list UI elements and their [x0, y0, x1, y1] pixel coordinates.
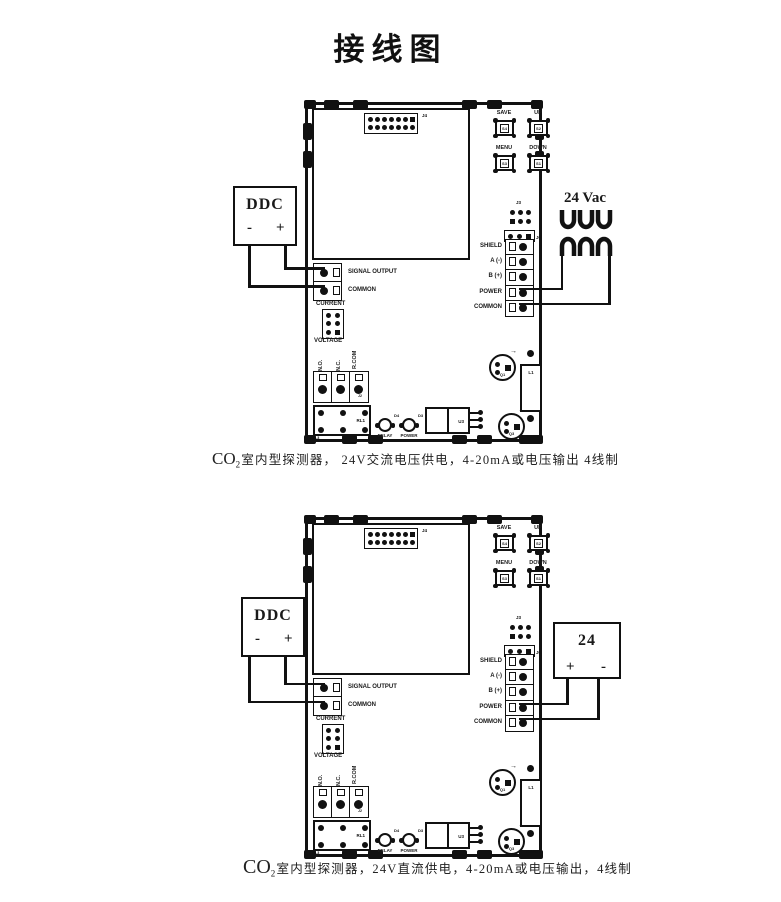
save-button: S4	[495, 535, 514, 551]
menu-button: S3	[495, 155, 514, 171]
l1-inductor: L1	[520, 364, 542, 412]
save-button-label: SAVE	[490, 526, 518, 532]
ddc-title: DDC	[235, 196, 295, 214]
menu-button: S3	[495, 570, 514, 586]
relay-led	[378, 418, 392, 432]
d4-label: D4	[394, 829, 399, 833]
q3-transistor: Q3	[498, 413, 525, 440]
caption-diagram-2: CO2室内型探测器，24V直流供电，4-20mA或电压输出，4线制	[243, 856, 632, 879]
ddc-title: DDC	[243, 607, 303, 625]
ddc-minus-terminal: -	[255, 632, 260, 647]
common-label: COMMON	[438, 719, 502, 725]
terminal-no	[314, 787, 332, 817]
relay-rl1: RL1	[313, 820, 371, 851]
j3-label: J3	[516, 201, 521, 206]
wire-xfmr-left-leg	[561, 252, 564, 290]
a-minus-label: A (-)	[438, 673, 502, 679]
dc-source-label: 24	[555, 632, 619, 650]
up-button: S2	[529, 535, 548, 551]
shield-label: SHIELD	[438, 243, 502, 249]
wire-dc-minus-h	[519, 718, 600, 721]
detector-board-2: J4 SAVE S4 UP S2 MENU S3 DOWN S1 J3	[305, 517, 542, 857]
j3-label: J3	[516, 616, 521, 621]
current-voltage-jumper	[322, 724, 344, 754]
wire-xfmr-power-h	[519, 288, 563, 291]
up-button: S2	[529, 120, 548, 136]
q1-arrow: →	[510, 348, 517, 355]
b-plus-label: B (+)	[438, 273, 502, 279]
ddc-controller-2: DDC - +	[241, 597, 305, 657]
a-minus-label: A (-)	[438, 258, 502, 264]
power-label: POWER	[438, 289, 502, 295]
wiring-diagram-page: 接线图 J4 SAVE S4 UP	[0, 0, 781, 902]
b-plus-label: B (+)	[438, 688, 502, 694]
terminal-b-plus	[506, 270, 533, 285]
common-label: COMMON	[438, 304, 502, 310]
current-voltage-jumper	[322, 309, 344, 339]
dc-power-source: 24 + -	[553, 622, 621, 679]
ddc-controller-1: DDC - +	[233, 186, 297, 246]
dc-minus-terminal: -	[601, 660, 606, 675]
down-button-label: DOWN	[522, 146, 554, 152]
wire-ddc1-minus-h	[248, 285, 325, 288]
save-button-label: SAVE	[490, 111, 518, 117]
menu-button-label: MENU	[488, 146, 520, 152]
wire-ddc2-minus-h	[248, 701, 325, 704]
u3-component: U3	[425, 822, 470, 849]
j2-label: J2	[358, 395, 362, 399]
l1-inductor: L1	[520, 779, 542, 827]
j3-header	[508, 208, 532, 226]
ddc-minus-terminal: -	[247, 221, 252, 236]
no-label: N.O.	[319, 758, 325, 786]
j2-label: J2	[358, 810, 362, 814]
wire-dc-plus-h	[519, 703, 569, 706]
no-label: N.O.	[319, 343, 325, 371]
rcom-label: R.COM	[353, 756, 359, 784]
nc-label: N.C.	[337, 758, 343, 786]
wire-xfmr-common-h	[519, 303, 611, 306]
down-button: S1	[529, 155, 548, 171]
j4-connector	[364, 113, 418, 134]
d4-label: D4	[394, 414, 399, 418]
wire-ddc1-plus-v	[284, 246, 287, 269]
u3-component: U3	[425, 407, 470, 434]
switch-label: SWITCH	[526, 436, 540, 440]
terminal-shield	[506, 240, 533, 255]
ddc-plus-terminal: +	[284, 632, 293, 647]
save-button: S4	[495, 120, 514, 136]
terminal-nc	[332, 372, 350, 402]
sl3-label: SL3	[312, 851, 319, 855]
comm-terminal-block	[505, 239, 534, 317]
page-title: 接线图	[0, 24, 781, 69]
current-label: CURRENT	[316, 301, 345, 307]
wire-xfmr-right-leg	[608, 252, 611, 305]
shield-label: SHIELD	[438, 658, 502, 664]
power-label: POWER	[438, 704, 502, 710]
wire-ddc2-plus-h	[284, 683, 325, 686]
comm-terminal-block	[505, 654, 534, 732]
j4-connector	[364, 528, 418, 549]
up-button-label: UP	[524, 526, 552, 532]
terminal-b-plus	[506, 685, 533, 700]
ddc-plus-terminal: +	[276, 221, 285, 236]
terminal-a-minus	[506, 255, 533, 270]
d3-label: D3	[418, 829, 423, 833]
up-button-label: UP	[524, 111, 552, 117]
detector-board-1: J4 SAVE S4 UP S2 MENU S3 DOWN S1 J3	[305, 102, 542, 442]
j3-header	[508, 623, 532, 641]
wire-dc-plus-v	[566, 679, 569, 705]
power-led	[402, 418, 416, 432]
terminal-no	[314, 372, 332, 402]
q1-transistor: Q1	[489, 354, 516, 381]
terminal-nc	[332, 787, 350, 817]
j6-label: J6	[536, 236, 541, 241]
rcom-label: R.COM	[353, 341, 359, 369]
pcb-outline: J4 SAVE S4 UP S2 MENU S3 DOWN S1 J3	[305, 517, 542, 857]
wire-ddc1-minus-v	[248, 246, 251, 287]
output-common-label: COMMON	[348, 287, 376, 293]
q3-transistor: Q3	[498, 828, 525, 855]
terminal-a-minus	[506, 670, 533, 685]
relay-led	[378, 833, 392, 847]
transformer-label: 24 Vac	[552, 190, 618, 207]
terminal-shield	[506, 655, 533, 670]
j6-label: J6	[536, 651, 541, 656]
signal-output-label: SIGNAL OUTPUT	[348, 269, 397, 275]
q1-arrow: →	[510, 763, 517, 770]
nc-label: N.C.	[337, 343, 343, 371]
down-button: S1	[529, 570, 548, 586]
dc-plus-terminal: +	[566, 660, 575, 675]
menu-button-label: MENU	[488, 561, 520, 567]
wire-ddc1-plus-h	[284, 267, 325, 270]
switch-label: SWITCH	[526, 851, 540, 855]
wire-dc-minus-v	[597, 679, 600, 720]
power-led-label: POWER	[394, 434, 424, 439]
j4-label: J4	[422, 529, 427, 534]
q3-arrow: →	[518, 822, 525, 829]
relay-rl1: RL1	[313, 405, 371, 436]
current-label: CURRENT	[316, 716, 345, 722]
wire-ddc2-minus-v	[248, 656, 251, 702]
d3-label: D3	[418, 414, 423, 418]
sl3-label: SL3	[312, 436, 319, 440]
j4-label: J4	[422, 114, 427, 119]
power-led-label: POWER	[394, 849, 424, 854]
q3-arrow: →	[518, 407, 525, 414]
caption-diagram-1: CO2室内型探测器， 24V交流电压供电，4-20mA或电压输出 4线制	[212, 449, 619, 470]
pcb-outline: J4 SAVE S4 UP S2 MENU S3 DOWN S1 J3	[305, 102, 542, 442]
down-button-label: DOWN	[522, 561, 554, 567]
output-common-label: COMMON	[348, 702, 376, 708]
q1-transistor: Q1	[489, 769, 516, 796]
transformer-icon	[556, 210, 614, 256]
signal-output-label: SIGNAL OUTPUT	[348, 684, 397, 690]
wire-ddc2-plus-v	[284, 656, 287, 684]
power-led	[402, 833, 416, 847]
